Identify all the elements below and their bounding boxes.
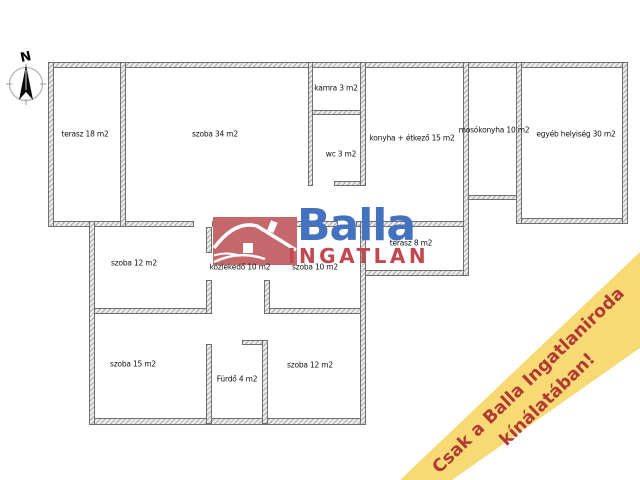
floorplan-image: N Balla INGATLAN terasz 18 m2 szoba 34 m… [0, 0, 640, 480]
promo-ribbon-shape [400, 252, 640, 480]
promo-ribbon-line1: Csak a Balla Ingatlaniroda [429, 284, 629, 478]
promo-ribbon: Csak a Balla Ingatlaniroda kínálatában! [0, 0, 640, 480]
